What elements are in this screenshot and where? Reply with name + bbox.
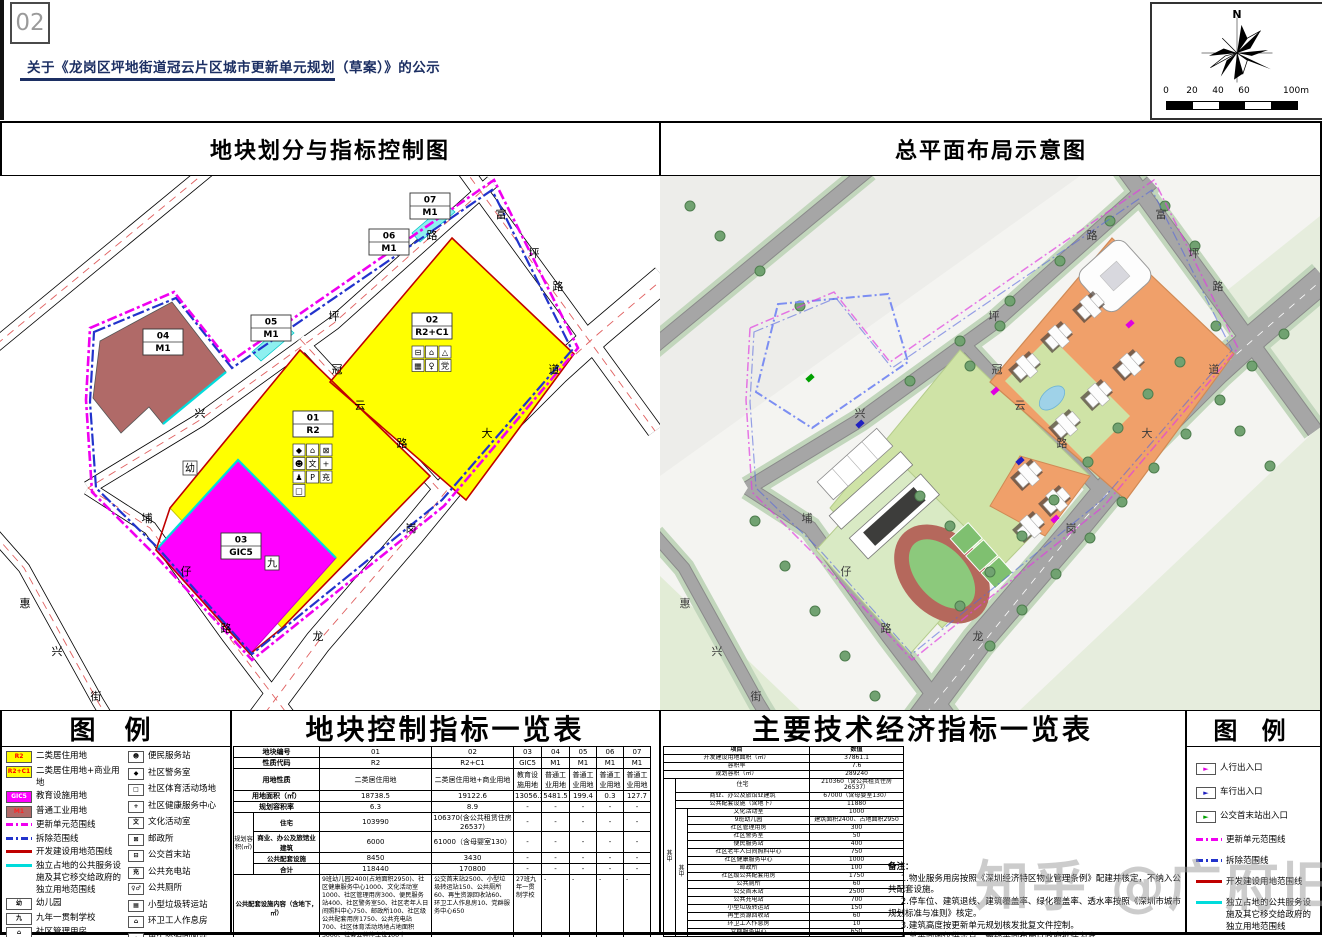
legend-label: 独立占地的公共服务设施及其它移交给政府的独立用地范围线 (1226, 897, 1316, 933)
svg-text:04: 04 (157, 332, 170, 342)
table-row: 公共充电站700 (664, 896, 904, 904)
legend-chip: R2 (6, 751, 32, 763)
legend-item: GIC5教育设施用地 (6, 790, 128, 803)
svg-text:M1: M1 (422, 208, 437, 218)
legend-chip: □ (128, 784, 144, 796)
table-cell: 0.3 (597, 791, 624, 802)
table-cell: 便民服务站 (688, 840, 810, 848)
right-panel-title: 总平面布局示意图 (660, 121, 1322, 176)
table-cell: 容积率 (664, 763, 810, 771)
table-row: 用地面积（㎡）18738.519122.613056.35481.5199.40… (234, 791, 651, 802)
road-name-char: 冠 (992, 363, 1003, 376)
table-cell: 社区老年人日间照料中心 (688, 848, 810, 856)
svg-text:R2: R2 (306, 426, 319, 436)
legend-item: ⊟公交首末站 (128, 849, 230, 862)
table-cell: M1 (597, 758, 624, 769)
line-red-swatch (1196, 880, 1222, 883)
health-center-icon: + (320, 458, 332, 470)
svg-text:⊟: ⊟ (415, 348, 422, 357)
note-item: 3.建筑高度按更新单元规划核发批复文件控制。 (888, 921, 1182, 933)
svg-text:♟: ♟ (295, 473, 302, 482)
table-cell: - (597, 832, 624, 853)
table-row: 便民服务站400 (664, 840, 904, 848)
legend-item: ☻便民服务站 (128, 750, 230, 763)
road-name-char: 兴 (52, 645, 63, 658)
line-red-swatch (6, 850, 32, 853)
table-cell: 商业、办公及旅馆业建筑 (676, 792, 810, 800)
table-cell: - (597, 802, 624, 813)
legend-label: 公交首末站出入口 (1220, 810, 1316, 822)
road-name-char: 街 (91, 689, 102, 703)
legend-chip: + (128, 801, 144, 813)
row-label: 合计 (254, 864, 320, 875)
road-name-char: 路 (427, 229, 438, 242)
legend-chip: ☻ (128, 751, 144, 763)
legend-label: 二类居住用地+商业用地 (36, 765, 128, 789)
road-name-char: 路 (881, 622, 892, 635)
road-name-char: 街 (751, 689, 762, 703)
table-cell: 199.4 (570, 791, 597, 802)
svg-text:△: △ (442, 348, 449, 357)
table-cell: 27班九年一贯制学校 (514, 875, 542, 937)
scale-tick: 60 (1238, 86, 1249, 96)
kindergarten-marker: 幼 (183, 461, 197, 475)
page-number: 02 (15, 10, 44, 36)
table-cell: 再生资源回收站 (688, 912, 810, 920)
table-cell: - (624, 853, 651, 864)
table-cell: 106370(含公共租赁住房26537) (432, 813, 514, 832)
svg-text:▦: ▦ (414, 362, 422, 371)
table-cell: 普通工业用地 (624, 769, 651, 791)
table-cell: 普通工业用地 (570, 769, 597, 791)
svg-text:01: 01 (307, 414, 320, 424)
svg-text:文: 文 (309, 459, 317, 469)
left-panel-title: 地块划分与指标控制图 (0, 121, 660, 176)
table-row: 性质代码R2R2+C1GIC5M1M1M1M1 (234, 758, 651, 769)
svg-text:06: 06 (383, 232, 396, 242)
table-cell: 03 (514, 747, 542, 758)
zoning-map[interactable]: 富坪路路坪兴冠云路道大岗龙埔仔路惠兴街01R202R2+C103GIC504M1… (0, 176, 660, 710)
table-cell: - (624, 864, 651, 875)
public-parking-icon: P (307, 471, 319, 483)
table-cell: 文化活动室 (688, 808, 810, 816)
legend-label: 便民服务站 (148, 750, 230, 762)
legend-item: △再生资源回收站 (128, 932, 230, 937)
table-row: 公共配套设施内容（含地下，㎡）9班幼儿园2400(占地面积2950)、社区健康服… (234, 875, 651, 937)
svg-text:GIC5: GIC5 (229, 548, 253, 558)
row-label: 商业、办公及旅馆业建筑 (254, 832, 320, 853)
table-cell: 18738.5 (320, 791, 432, 802)
table-cell: 05 (570, 747, 597, 758)
notes-title: 备注： (888, 862, 1182, 874)
scale-bar (1166, 101, 1298, 110)
road-name-char: 冠 (332, 363, 343, 376)
legend-chip: ⌂ (128, 916, 144, 928)
legend-label: 公共充电站 (148, 866, 230, 878)
note-item: 4.总平面图仅供示意，最终平面布局以政府批件为准。 (888, 932, 1182, 937)
legend-chip: 幼 (6, 898, 32, 910)
table-cell: 300 (810, 824, 904, 832)
road-name-char: 道 (1209, 362, 1220, 376)
svg-text:M1: M1 (263, 330, 278, 340)
legend-item: ⊠邮政所 (128, 833, 230, 846)
legend-item: □社区体育活动场地 (128, 783, 230, 796)
legend-item: ◆社区警务室 (128, 767, 230, 780)
svg-text:◆: ◆ (296, 446, 303, 455)
road-name-char: 路 (221, 622, 232, 635)
legend-item: 独立占地的公共服务设施及其它移交给政府的独立用地范围线 (6, 860, 128, 896)
legend-item: 开发建设用地范围线 (1196, 876, 1316, 888)
table-row: 规划容积（㎡）289240 (664, 771, 904, 779)
table-cell: - (597, 875, 624, 937)
table-cell: - (624, 813, 651, 832)
svg-text:05: 05 (265, 318, 278, 328)
table-row: 商业、办公及旅馆业建筑67000（含母婴室130） (664, 792, 904, 800)
title-underline (20, 78, 335, 81)
table-cell: R2 (320, 758, 432, 769)
table-row: 商业、办公及旅馆业建筑600061000（含母婴室130）----- (234, 832, 651, 853)
table-cell: - (570, 802, 597, 813)
table-cell: 公交首末站 (688, 888, 810, 896)
svg-text:02: 02 (426, 316, 439, 326)
road-name-char: 兴 (712, 645, 723, 658)
legend-chip: GIC5 (6, 791, 32, 803)
table-cell: 环卫工人作息房 (688, 920, 810, 928)
table-row: 合计118440170800----- (234, 864, 651, 875)
table-cell: - (570, 864, 597, 875)
legend-label: 车行出入口 (1220, 786, 1316, 798)
legend-item: ♀♂公共厕所 (128, 882, 230, 895)
table-cell: GIC5 (514, 758, 542, 769)
public-toilet-icon: ♀ (426, 360, 438, 372)
line-magenta-swatch (1196, 838, 1222, 841)
service-station-icon: ☻ (293, 458, 305, 470)
legend-label: 幼儿园 (36, 897, 128, 909)
table-row: 社区健康服务中心1000 (664, 856, 904, 864)
table-row: 小型垃圾转运站150 (664, 904, 904, 912)
road-name-char: 大 (1142, 426, 1153, 440)
road-name-char: 富 (1156, 207, 1167, 221)
sports-ground-icon: □ (293, 485, 305, 497)
table-cell: 住宅 (676, 779, 810, 793)
svg-text:M1: M1 (155, 344, 170, 354)
road-name-char: 惠 (680, 596, 691, 610)
table-row: 党群服务中心650 (664, 928, 904, 936)
table-row: 规划容积(㎡)住宅103990106370(含公共租赁住房26537)----- (234, 813, 651, 832)
table-cell: 社区级公共配套用房 (688, 872, 810, 880)
legend-item: 开发建设用地范围线 (6, 846, 128, 858)
table-cell: 750 (810, 848, 904, 856)
road-name-char: 岗 (406, 522, 417, 535)
plot-label-03: 03GIC5 (221, 533, 261, 559)
table-cell: 02 (432, 747, 514, 758)
legend-chip: M1 (6, 806, 32, 818)
table-cell: - (542, 875, 570, 937)
table-row: 开发建设用地面积（㎡）37861.1 (664, 755, 904, 763)
table-cell: 其中 (664, 779, 676, 937)
legend-chip: 文 (128, 817, 144, 829)
legend-item: ▦小型垃圾转运站 (128, 899, 230, 912)
line-cyan-swatch (6, 864, 32, 867)
row-label: 公共配套设施内容（含地下，㎡） (234, 875, 320, 937)
line-blue-swatch (6, 837, 32, 840)
legend-left-col1: R2二类居住用地R2+C1二类居住用地+商业用地GIC5教育设施用地M1普通工业… (6, 750, 128, 937)
table-cell: - (570, 813, 597, 832)
document-title: 关于《龙岗区坪地街道冠云片区城市更新单元规划（草案）》的公示 (27, 56, 440, 76)
table-cell: - (570, 875, 597, 937)
road-name-char: 岗 (1066, 522, 1077, 535)
table-cell: 8.9 (432, 802, 514, 813)
entrance-arrow-icon: ► (1196, 763, 1216, 775)
table-row: 社区警务室50 (664, 832, 904, 840)
legend-label: 更新单元范围线 (1226, 834, 1316, 846)
legend-label: 开发建设用地范围线 (36, 846, 128, 858)
trash-transfer-icon: ▦ (412, 360, 424, 372)
legend-label: 二类居住用地 (36, 750, 128, 762)
table-cell: 小型垃圾转运站 (688, 904, 810, 912)
notes-block: 备注：1.物业服务用房按照《深圳经济特区物业管理条例》配建并核定，不纳入公共配套… (888, 862, 1182, 937)
table-cell: 社区警务室 (688, 832, 810, 840)
table-cell: - (514, 813, 542, 832)
table-cell: - (514, 832, 542, 853)
road-name-char: 路 (1213, 280, 1224, 293)
tech-table-title: 主要技术经济指标一览表 (660, 710, 1185, 746)
table-cell: 37861.1 (810, 755, 904, 763)
row-label: 公共配套设施 (254, 853, 320, 864)
table-cell: 118440 (320, 864, 432, 875)
table-cell: 二类居住用地 (320, 769, 432, 791)
table-cell: 5481.5 (542, 791, 570, 802)
svg-text:□: □ (295, 487, 303, 496)
legend-label: 更新单元范围线 (36, 819, 128, 831)
scale-tick: 0 (1163, 86, 1169, 96)
legend-label: 再生资源回收站 (148, 932, 230, 937)
line-magenta-swatch (6, 823, 32, 826)
table-cell: M1 (542, 758, 570, 769)
legend-label: 邮政所 (148, 833, 230, 845)
legend-label: 教育设施用地 (36, 790, 128, 802)
road-name-char: 大 (482, 426, 493, 440)
legend-item: ►车行出入口 (1196, 786, 1316, 799)
compass-rose-icon (1200, 16, 1274, 84)
table-cell: 04 (542, 747, 570, 758)
legend-label: 拆除范围线 (36, 833, 128, 845)
table-cell: 11880 (810, 800, 904, 808)
table-row: 公共配套设施84503430----- (234, 853, 651, 864)
table-cell: 建筑面积2400、占地面积2950 (810, 816, 904, 824)
table-cell: 二类居住用地+商业用地 (432, 769, 514, 791)
table-cell: M1 (624, 758, 651, 769)
scale-labels: 0204060100m (1164, 86, 1310, 96)
table-cell: 教育设施用地 (514, 769, 542, 791)
road-name-char: 路 (553, 280, 564, 293)
legend-item: 文文化活动室 (128, 816, 230, 829)
legend-item: R2+C1二类居住用地+商业用地 (6, 765, 128, 789)
row-label: 性质代码 (234, 758, 320, 769)
table-cell: 127.7 (624, 791, 651, 802)
table-cell: 1000 (810, 808, 904, 816)
row-label: 用地性质 (234, 769, 320, 791)
table-cell: - (624, 875, 651, 937)
svg-text:+: + (323, 460, 330, 469)
table-cell: 01 (320, 747, 432, 758)
planning-notice-page: 02 关于《龙岗区坪地街道冠云片区城市更新单元规划（草案）》的公示 N 0204… (0, 0, 1322, 937)
legend-chip: ▦ (128, 900, 144, 912)
table-row: 社区老年人日间照料中心750 (664, 848, 904, 856)
legend-right-items: ►人行出入口►车行出入口►公交首末站出入口更新单元范围线拆除范围线开发建设用地范… (1196, 762, 1316, 937)
line-cyan-swatch (1196, 901, 1222, 904)
table-row: 公交首末站2500 (664, 888, 904, 896)
table-cell: 210360（含公共租赁住房26537） (810, 779, 904, 793)
road-name-char: 富 (496, 207, 507, 221)
row-label: 规划容积率 (234, 802, 320, 813)
svg-text:⌂: ⌂ (310, 446, 315, 455)
plot-label-06: 06M1 (369, 229, 409, 255)
road-name-char: 道 (549, 362, 560, 376)
table-cell: - (542, 802, 570, 813)
legend-item: 拆除范围线 (1196, 855, 1316, 867)
road-name-char: 坪 (329, 310, 340, 323)
legend-label: 公共厕所 (148, 882, 230, 894)
legend-item: 更新单元范围线 (6, 819, 128, 831)
entrance-arrow-icon: ► (1196, 787, 1216, 799)
table-cell: 13056.3 (514, 791, 542, 802)
road-name-char: 龙 (313, 630, 324, 643)
table-cell: 07 (624, 747, 651, 758)
left-edge-bar (0, 0, 4, 120)
road-name-char: 仔 (181, 565, 192, 578)
svg-text:幼: 幼 (185, 462, 195, 475)
table-cell: 6000 (320, 832, 432, 853)
road-name-char: 埔 (802, 512, 813, 525)
table-row: 容积率7.6 (664, 763, 904, 771)
road-name-char: 路 (1057, 437, 1068, 450)
table-row: 公共配套设施（含地下）11880 (664, 800, 904, 808)
svg-text:07: 07 (424, 196, 437, 206)
plot-label-04: 04M1 (143, 329, 183, 355)
row-label: 住宅 (254, 813, 320, 832)
note-item: 2.停车位、建筑退线、建筑覆盖率、绿化覆盖率、透水率按照《深圳市城市规划标准与准… (888, 897, 1182, 920)
compass-panel: N 0204060100m (1150, 2, 1322, 120)
table-cell: 06 (597, 747, 624, 758)
svg-text:☻: ☻ (295, 460, 303, 469)
table-cell: 党群服务中心 (688, 928, 810, 936)
road-name-char: 坪 (1189, 247, 1200, 260)
table-cell: 邮政所 (688, 864, 810, 872)
plot-label-07: 07M1 (410, 193, 450, 219)
table-cell: 19122.6 (432, 791, 514, 802)
table-cell: 400 (810, 840, 904, 848)
road-name-char: 云 (1015, 399, 1026, 412)
table-cell: - (514, 853, 542, 864)
legend-item: 充公共充电站 (128, 866, 230, 879)
table-row: 地块编号01020304050607 (234, 747, 651, 758)
bus-terminus-icon: ⊟ (412, 346, 424, 358)
legend-label: 环卫工人作息房 (148, 915, 230, 927)
legend-item: ⌂环卫工人作息房 (128, 915, 230, 928)
table-cell: - (597, 864, 624, 875)
legend-item: 独立占地的公共服务设施及其它移交给政府的独立用地范围线 (1196, 897, 1316, 933)
table-cell: - (542, 853, 570, 864)
page-number-box: 02 (10, 2, 50, 44)
table-row: 9班幼儿园建筑面积2400、占地面积2950 (664, 816, 904, 824)
table-row: 邮政所100 (664, 864, 904, 872)
table-cell: 61000（含母婴室130） (432, 832, 514, 853)
svg-text:R2+C1: R2+C1 (415, 328, 449, 338)
site-plan-map[interactable]: 富坪路路坪兴冠云路道大岗龙埔仔路惠兴街 (660, 176, 1320, 710)
road-name-char: 路 (397, 437, 408, 450)
legend-label: 独立占地的公共服务设施及其它移交给政府的独立用地范围线 (36, 860, 128, 896)
party-service-icon: 党 (439, 360, 451, 372)
legend-item: +社区健康服务中心 (128, 800, 230, 813)
legend-label: 普通工业用地 (36, 805, 128, 817)
table-cell: - (624, 802, 651, 813)
table-cell: 公交首末站2500、小型垃圾转运站150、公共厕所60、再生资源回收站60、环卫… (432, 875, 514, 937)
legend-chip: ⊠ (128, 834, 144, 846)
table-cell: M1 (570, 758, 597, 769)
road-name-char: 路 (1087, 229, 1098, 242)
table-cell: 公共充电站 (688, 896, 810, 904)
table-row: 环卫工人作息房10 (664, 920, 904, 928)
table-cell: 6.3 (320, 802, 432, 813)
culture-room-icon: 文 (307, 458, 319, 470)
legend-chip: ◆ (128, 768, 144, 780)
road-name-char: 仔 (841, 565, 852, 578)
table-cell: - (542, 813, 570, 832)
management-house-icon: ⌂ (307, 444, 319, 456)
scale-tick: 40 (1212, 86, 1223, 96)
legend-left-title: 图 例 (0, 710, 230, 747)
table-cell: 项目 (664, 747, 810, 755)
table-cell: R2+C1 (432, 758, 514, 769)
plot-label-02: 02R2+C1 (412, 313, 452, 339)
table-row: 用地性质二类居住用地二类居住用地+商业用地教育设施用地普通工业用地普通工业用地普… (234, 769, 651, 791)
note-item: 1.物业服务用房按照《深圳经济特区物业管理条例》配建并核定，不纳入公共配套设施。 (888, 874, 1182, 897)
legend-label: 社区管理用房 (36, 926, 128, 937)
legend-label: 公交首末站 (148, 849, 230, 861)
police-room-icon: ◆ (293, 444, 305, 456)
table-cell: 67000（含母婴室130） (810, 792, 904, 800)
road-name-char: 兴 (195, 407, 206, 420)
table-cell: 公共配套设施（含地下） (676, 800, 810, 808)
table-cell: 开发建设用地面积（㎡） (664, 755, 810, 763)
table-cell: - (570, 832, 597, 853)
elder-care-icon: ♟ (293, 471, 305, 483)
table-cell: - (597, 853, 624, 864)
legend-chip: ♀♂ (128, 883, 144, 895)
road-name-char: 龙 (973, 630, 984, 643)
table-cell: 社区健康服务中心 (688, 856, 810, 864)
post-office-icon: ⊠ (320, 444, 332, 456)
legend-item: ►公交首末站出入口 (1196, 810, 1316, 823)
table-row: 规划容积率6.38.9----- (234, 802, 651, 813)
charging-station-icon: 充 (320, 471, 332, 483)
table-cell: 3430 (432, 853, 514, 864)
legend-chip: △ (128, 933, 144, 937)
row-group-label: 规划容积(㎡) (234, 813, 254, 875)
legend-chip: ⌂ (6, 927, 32, 937)
table-cell: 9班幼儿园 (688, 816, 810, 824)
road-name-char: 兴 (855, 407, 866, 420)
table-cell: 社区管理用房 (688, 824, 810, 832)
legend-label: 文化活动室 (148, 816, 230, 828)
legend-chip: 充 (128, 867, 144, 879)
legend-item: ►人行出入口 (1196, 762, 1316, 775)
table-cell: - (514, 864, 542, 875)
plot-control-table: 地块编号01020304050607性质代码R2R2+C1GIC5M1M1M1M… (233, 746, 651, 937)
road-name-char: 惠 (20, 596, 31, 610)
tech-indicator-table: 项目数值开发建设用地面积（㎡）37861.1容积率7.6规划容积（㎡）28924… (663, 746, 904, 937)
